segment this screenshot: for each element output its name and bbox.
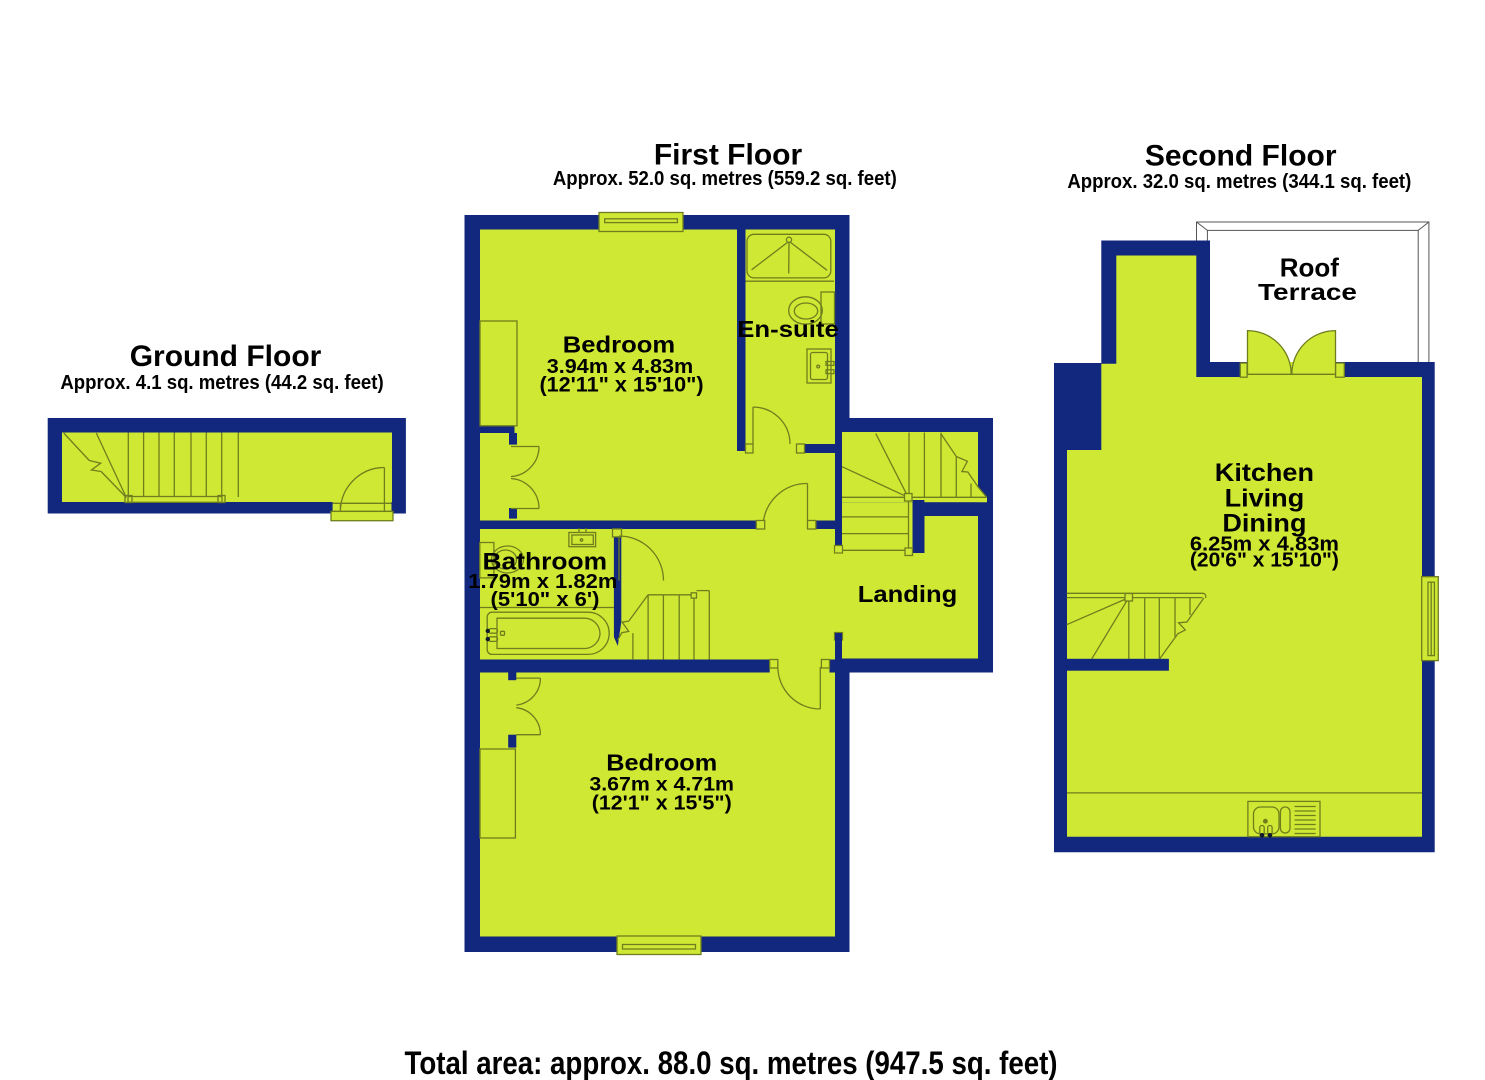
svg-text:Kitchen: Kitchen bbox=[1215, 460, 1314, 487]
svg-text:Bedroom: Bedroom bbox=[606, 751, 717, 777]
svg-text:Approx. 4.1 sq. metres (44.2 s: Approx. 4.1 sq. metres (44.2 sq. feet) bbox=[60, 372, 383, 394]
svg-text:Living: Living bbox=[1225, 485, 1305, 512]
svg-text:Roof: Roof bbox=[1280, 252, 1340, 282]
svg-text:Bedroom: Bedroom bbox=[563, 332, 675, 358]
svg-text:Ground Floor: Ground Floor bbox=[130, 340, 322, 373]
svg-text:Total area: approx. 88.0 sq. m: Total area: approx. 88.0 sq. metres (947… bbox=[404, 1046, 1057, 1080]
svg-text:Approx. 32.0 sq. metres (344.1: Approx. 32.0 sq. metres (344.1 sq. feet) bbox=[1067, 171, 1411, 193]
svg-text:(12'11" x 15'10"): (12'11" x 15'10") bbox=[539, 373, 703, 397]
svg-text:En-suite: En-suite bbox=[737, 317, 839, 342]
svg-text:Approx. 52.0 sq. metres (559.2: Approx. 52.0 sq. metres (559.2 sq. feet) bbox=[553, 168, 897, 190]
svg-text:Landing: Landing bbox=[858, 582, 958, 608]
svg-text:(5'10" x 6'): (5'10" x 6') bbox=[491, 589, 600, 611]
svg-text:(12'1" x 15'5"): (12'1" x 15'5") bbox=[592, 792, 732, 814]
svg-text:Terrace: Terrace bbox=[1258, 280, 1357, 305]
svg-text:First Floor: First Floor bbox=[654, 139, 803, 172]
svg-text:(20'6" x 15'10"): (20'6" x 15'10") bbox=[1190, 549, 1339, 571]
svg-text:Second Floor: Second Floor bbox=[1145, 140, 1337, 173]
